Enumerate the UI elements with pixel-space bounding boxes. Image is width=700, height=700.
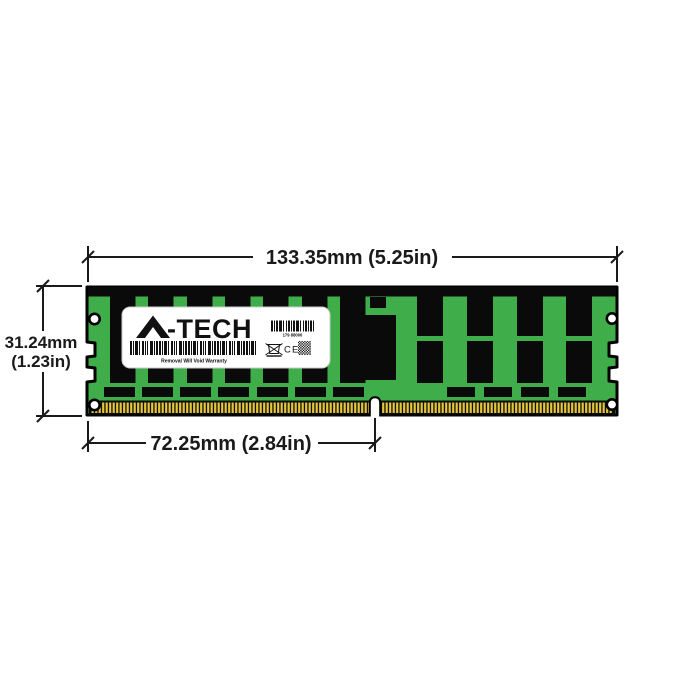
pin-span-dimension-label: 72.25mm (2.84in)	[150, 433, 311, 455]
small-component	[558, 387, 586, 397]
ce-mark: CE	[284, 345, 300, 356]
memory-chip	[566, 290, 592, 336]
serial-number: 179 88000	[283, 333, 303, 338]
small-component	[104, 387, 135, 397]
small-component	[142, 387, 173, 397]
memory-chip	[417, 290, 443, 336]
diagram-canvas: -TECH 179 88000 Removal Will Void Warran…	[0, 0, 700, 700]
small-component	[218, 387, 249, 397]
small-component	[180, 387, 211, 397]
small-component	[295, 387, 326, 397]
memory-chip	[566, 341, 592, 383]
small-component	[521, 387, 549, 397]
height-dimension-label-mm: 31.24mm	[5, 333, 78, 352]
mounting-hole	[607, 313, 617, 323]
pin-strip	[89, 401, 615, 415]
mounting-hole	[89, 314, 99, 324]
height-dimension-label-in: (1.23in)	[11, 352, 71, 371]
width-dimension-label: 133.35mm (5.25in)	[266, 247, 438, 269]
small-component	[447, 387, 475, 397]
spd-chip	[370, 297, 386, 308]
memory-chip	[467, 341, 493, 383]
small-component	[333, 387, 364, 397]
memory-chip	[517, 341, 543, 383]
small-component	[257, 387, 288, 397]
memory-chip	[417, 341, 443, 383]
warranty-text: Removal Will Void Warranty	[161, 359, 227, 365]
product-label: -TECH 179 88000 Removal Will Void Warran…	[122, 307, 330, 368]
pin-contacts	[91, 403, 613, 414]
mounting-hole	[89, 400, 99, 410]
mounting-hole	[607, 399, 617, 409]
dimension-diagram: -TECH 179 88000 Removal Will Void Warran…	[0, 0, 700, 700]
memory-chip	[340, 290, 366, 383]
qr-code-icon	[298, 341, 311, 355]
brand-text: -TECH	[167, 314, 252, 344]
small-component	[484, 387, 512, 397]
memory-chip	[517, 290, 543, 336]
key-notch	[370, 397, 380, 416]
register-chip	[362, 315, 396, 380]
memory-chip	[467, 290, 493, 336]
